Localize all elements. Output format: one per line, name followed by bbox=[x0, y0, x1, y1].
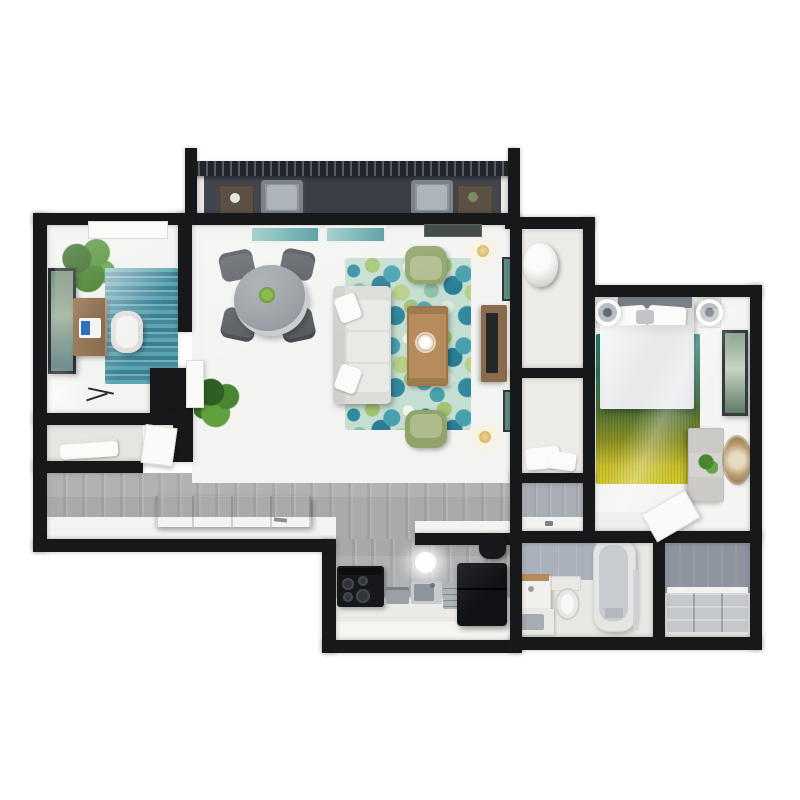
wall-west-outer bbox=[33, 213, 47, 552]
ceiling-vent bbox=[424, 224, 482, 237]
bedroom-wall-art bbox=[722, 330, 748, 416]
cooktop-burner-2 bbox=[358, 576, 368, 586]
wall-office-south bbox=[33, 413, 174, 425]
wall-bath-closet-divider bbox=[653, 543, 665, 641]
balcony-railing bbox=[190, 161, 515, 176]
floor-lamp-bottom-bulb bbox=[479, 431, 491, 443]
floor-plan-canvas bbox=[0, 0, 800, 800]
accent-chair-bottom-cushion bbox=[410, 414, 442, 438]
tv bbox=[486, 313, 498, 373]
wall-bath-north bbox=[510, 531, 762, 543]
table-lamp-left bbox=[594, 299, 621, 326]
linen-closet-open-door bbox=[140, 424, 177, 467]
wall-balcony-stub-right bbox=[508, 148, 520, 218]
wall-balcony-stub-left bbox=[185, 148, 197, 218]
shower-glass-screen bbox=[633, 570, 638, 630]
kitchen-ceiling-light bbox=[415, 552, 436, 573]
cooktop-control-strip bbox=[339, 568, 382, 575]
sofa-cushion-2 bbox=[347, 332, 389, 362]
bathroom-vanity-faucet bbox=[528, 586, 534, 592]
office-open-door bbox=[186, 360, 204, 408]
toilet-bowl bbox=[555, 588, 580, 620]
living-window-right bbox=[325, 226, 386, 243]
wcloset-built-in-drawers bbox=[667, 593, 748, 632]
range-hood bbox=[479, 534, 506, 559]
cooktop-burner-1 bbox=[342, 578, 354, 590]
office-wall-art bbox=[48, 268, 76, 374]
refrigerator-seam bbox=[457, 588, 507, 590]
accent-chair-top-cushion bbox=[410, 256, 442, 280]
office-desk-chair bbox=[111, 311, 143, 353]
wall-bath-south bbox=[510, 637, 762, 650]
office-skylight bbox=[88, 221, 168, 239]
wall-east-outer bbox=[750, 285, 762, 650]
cooktop-burner-4 bbox=[356, 589, 370, 603]
wall-closetcol-divider bbox=[510, 368, 595, 378]
alcove-door-handle-mark bbox=[545, 521, 553, 526]
balcony-floor-center bbox=[305, 172, 415, 218]
wall-kitchen-south bbox=[322, 640, 522, 653]
wall-closetcol-south bbox=[510, 473, 595, 483]
floor-lamp-top-bulb bbox=[477, 245, 489, 257]
balcony-edge-left bbox=[197, 172, 204, 218]
wall-linen-closet-south bbox=[33, 461, 143, 473]
bedroom-small-plant bbox=[698, 453, 718, 475]
refrigerator bbox=[457, 563, 507, 626]
cooktop-burner-3 bbox=[343, 592, 353, 602]
bed-accent-pillow bbox=[636, 310, 654, 324]
kitchen-divider-wallface bbox=[415, 521, 510, 533]
table-lamp-right bbox=[696, 299, 723, 326]
wall-kitchen-west bbox=[322, 539, 336, 653]
wall-mid-vertical bbox=[510, 218, 522, 653]
decorative-mirror bbox=[724, 437, 750, 483]
living-window-left bbox=[250, 226, 320, 243]
wall-closetcol-north bbox=[505, 217, 595, 229]
wall-bedroom-north bbox=[588, 285, 762, 297]
patio-table-decor-left bbox=[230, 193, 240, 203]
kitchen-faucet bbox=[430, 583, 435, 588]
office-laptop-screen bbox=[81, 321, 90, 335]
patio-table-decor-right bbox=[468, 192, 478, 202]
wall-southwest bbox=[33, 539, 336, 552]
balcony-edge-right bbox=[501, 172, 508, 218]
bathtub-faucet bbox=[605, 608, 623, 618]
bed-duvet bbox=[600, 325, 694, 409]
wall-office-east-upper bbox=[178, 213, 192, 332]
coffee-table-medallion bbox=[417, 334, 434, 351]
dining-centerpiece bbox=[259, 287, 275, 303]
entry-bench bbox=[155, 496, 311, 527]
closet-bottom-linens-2 bbox=[547, 450, 577, 472]
patio-chair-left-cushion bbox=[267, 185, 297, 210]
wcloset-back-wall bbox=[665, 543, 750, 593]
patio-chair-right-cushion bbox=[417, 185, 447, 210]
toaster-oven bbox=[386, 587, 409, 604]
water-heater bbox=[523, 243, 558, 287]
